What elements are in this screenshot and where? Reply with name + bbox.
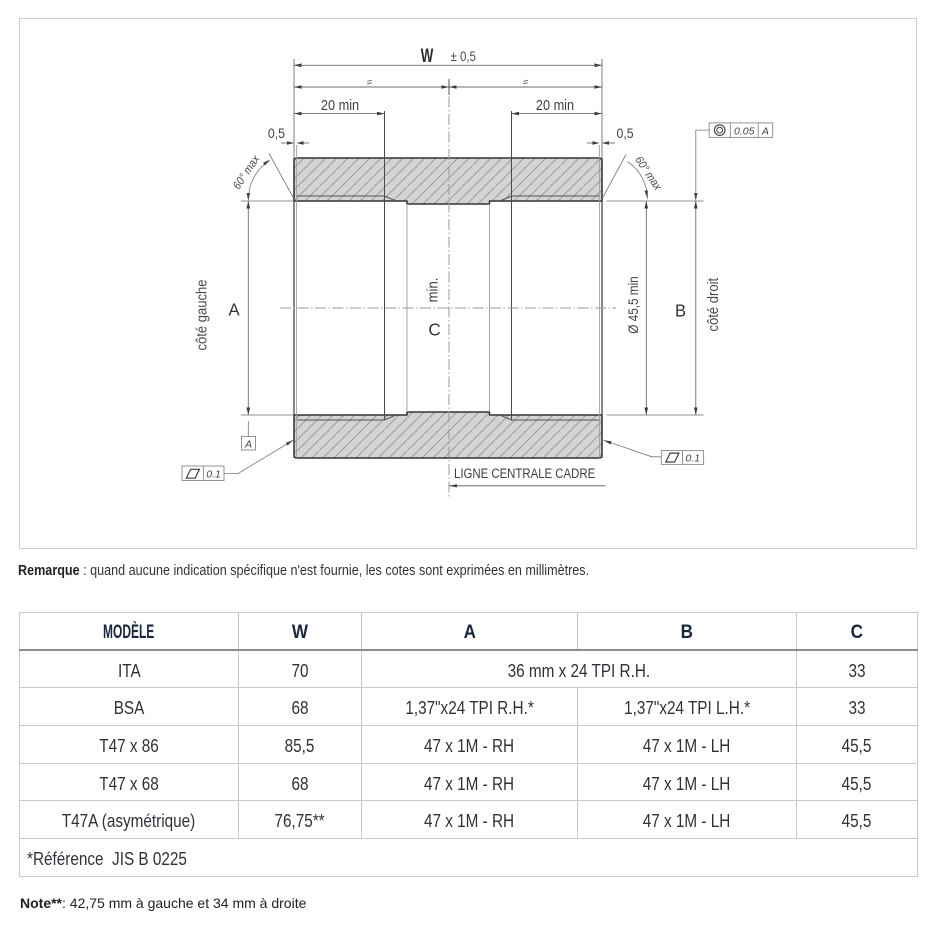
svg-text:0,5: 0,5 (268, 125, 285, 141)
svg-text:W: W (421, 46, 434, 67)
svg-text:Ø 45,5 min: Ø 45,5 min (625, 276, 641, 333)
svg-text:0,5: 0,5 (617, 125, 634, 141)
svg-text:côté gauche: côté gauche (194, 279, 210, 350)
svg-text:A: A (228, 300, 240, 319)
svg-text:B: B (675, 301, 686, 320)
svg-text:C: C (428, 319, 440, 340)
svg-text:0.1: 0.1 (206, 468, 221, 480)
svg-text:± 0,5: ± 0,5 (451, 49, 476, 64)
svg-text:A: A (244, 439, 252, 451)
svg-text:20 min: 20 min (536, 96, 574, 113)
svg-text:A: A (761, 125, 769, 137)
svg-text:min.: min. (425, 278, 441, 303)
svg-text:60° max: 60° max (632, 154, 664, 193)
svg-text:0.05: 0.05 (734, 125, 755, 137)
svg-text:20 min: 20 min (321, 96, 359, 113)
svg-text:60° max: 60° max (231, 153, 263, 192)
svg-text:côté droit: côté droit (705, 278, 721, 332)
svg-text:LIGNE CENTRALE CADRE: LIGNE CENTRALE CADRE (454, 466, 595, 481)
svg-text:0.1: 0.1 (685, 452, 700, 464)
